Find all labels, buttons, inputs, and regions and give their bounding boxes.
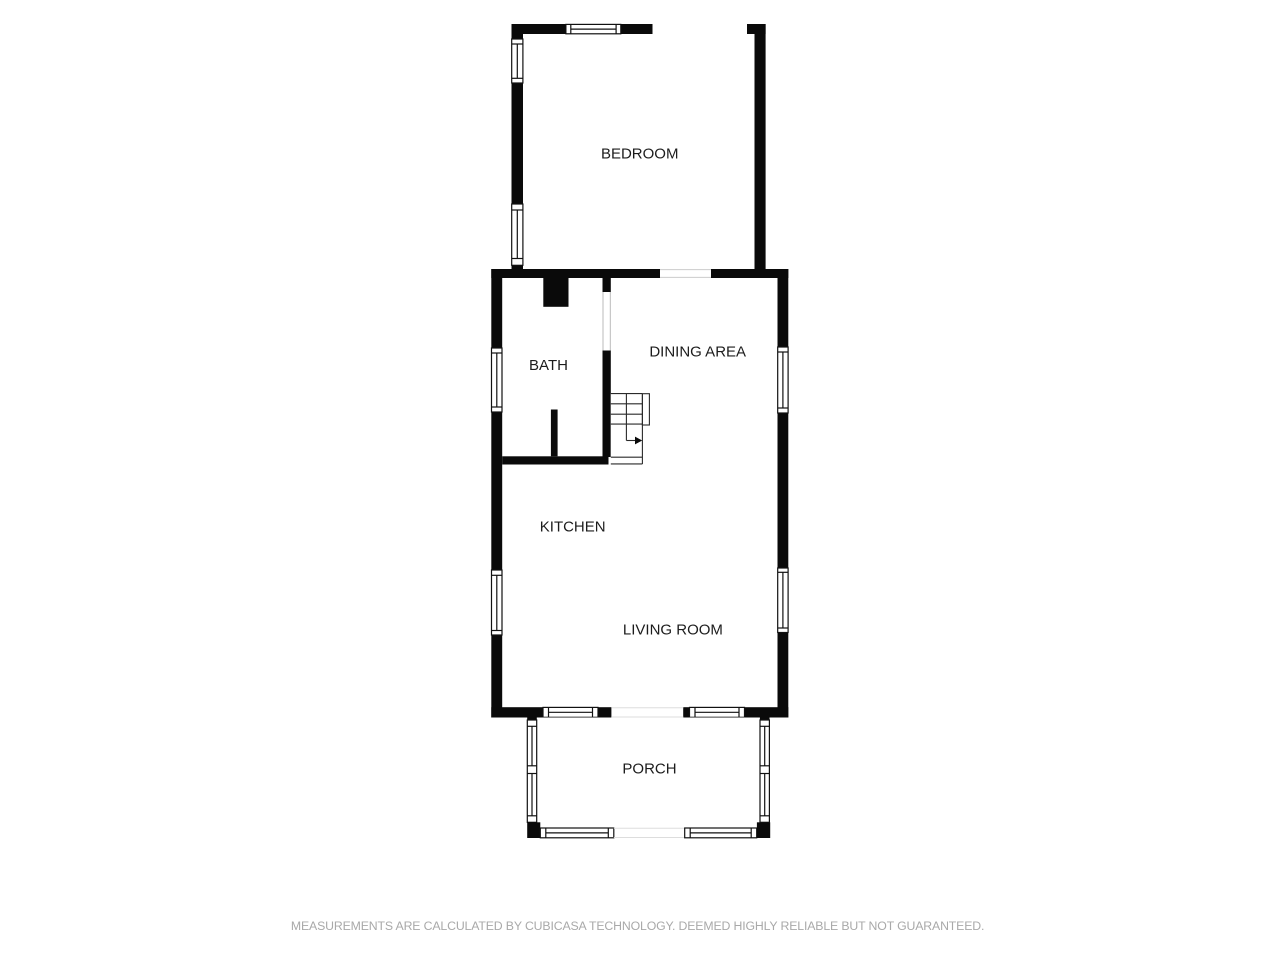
svg-text:BEDROOM: BEDROOM	[601, 145, 679, 162]
svg-text:MEASUREMENTS ARE CALCULATED BY: MEASUREMENTS ARE CALCULATED BY CUBICASA …	[291, 919, 984, 933]
svg-text:LIVING ROOM: LIVING ROOM	[623, 622, 723, 639]
svg-text:DINING AREA: DINING AREA	[649, 343, 746, 360]
svg-text:KITCHEN: KITCHEN	[540, 518, 606, 535]
svg-text:BATH: BATH	[529, 357, 568, 374]
svg-text:PORCH: PORCH	[622, 760, 676, 777]
